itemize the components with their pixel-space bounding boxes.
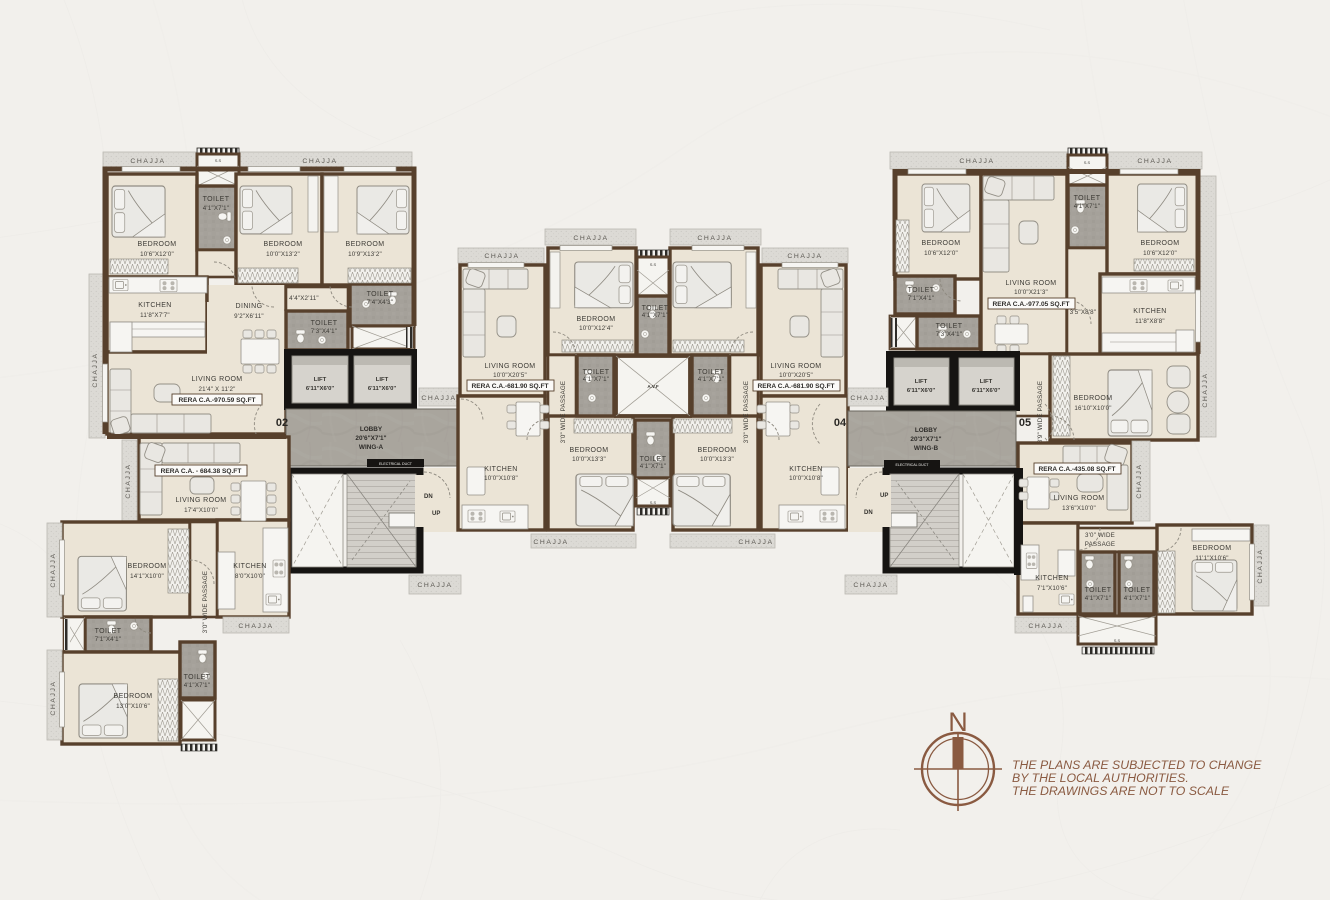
svg-text:11'1"X10'6": 11'1"X10'6" <box>1195 555 1228 562</box>
svg-text:RERA C.A.-681.90 SQ.FT: RERA C.A.-681.90 SQ.FT <box>757 383 834 390</box>
svg-text:10'6"X12'0": 10'6"X12'0" <box>924 250 958 257</box>
svg-text:LIFT: LIFT <box>314 377 327 383</box>
svg-text:17'4"X10'0": 17'4"X10'0" <box>184 507 218 514</box>
svg-text:BEDROOM: BEDROOM <box>1141 240 1180 247</box>
svg-text:RERA C.A.-977.05 SQ.FT: RERA C.A.-977.05 SQ.FT <box>992 301 1069 308</box>
svg-text:BY THE LOCAL AUTHORITIES.: BY THE LOCAL AUTHORITIES. <box>1012 771 1189 785</box>
svg-text:WING-B: WING-B <box>914 445 939 452</box>
svg-text:ELECTRICAL DUCT: ELECTRICAL DUCT <box>895 463 929 467</box>
svg-text:RERA C.A.-435.08 SQ.FT: RERA C.A.-435.08 SQ.FT <box>1038 466 1115 473</box>
svg-text:TOILET: TOILET <box>1085 587 1112 594</box>
svg-text:6'11"X6'0": 6'11"X6'0" <box>306 386 335 392</box>
svg-text:7'4"X4'3": 7'4"X4'3" <box>367 299 393 306</box>
svg-text:CHAJJA: CHAJJA <box>130 158 165 165</box>
svg-text:RERA C.A. - 684.38 SQ.FT: RERA C.A. - 684.38 SQ.FT <box>161 468 242 475</box>
svg-text:WING-A: WING-A <box>359 444 384 451</box>
svg-text:7'1"X4'1": 7'1"X4'1" <box>95 636 121 643</box>
svg-text:TOILET: TOILET <box>95 628 122 635</box>
svg-text:S.S: S.S <box>650 262 657 267</box>
svg-text:7'3"X4'1": 7'3"X4'1" <box>311 328 337 335</box>
svg-text:TOILET: TOILET <box>184 674 211 681</box>
svg-text:CHAJJA: CHAJJA <box>533 539 568 546</box>
svg-text:BEDROOM: BEDROOM <box>346 241 385 248</box>
svg-text:BEDROOM: BEDROOM <box>922 240 961 247</box>
svg-text:3'0" WIDE PASSAGE: 3'0" WIDE PASSAGE <box>202 571 209 633</box>
svg-text:LIVING ROOM: LIVING ROOM <box>1005 280 1056 287</box>
svg-text:RERA C.A.-970.59 SQ.FT: RERA C.A.-970.59 SQ.FT <box>178 397 255 404</box>
svg-text:3'9" WIDE PASSAGE: 3'9" WIDE PASSAGE <box>1037 381 1044 443</box>
svg-text:DN: DN <box>424 494 433 500</box>
svg-text:LIVING ROOM: LIVING ROOM <box>770 363 821 370</box>
svg-text:CHAJJA: CHAJJA <box>238 623 273 630</box>
svg-text:4'1"X7'1": 4'1"X7'1" <box>698 376 724 383</box>
svg-text:10'0"X20'5": 10'0"X20'5" <box>493 372 527 379</box>
svg-text:4'1"X7'1": 4'1"X7'1" <box>1124 595 1150 602</box>
svg-text:KITCHEN: KITCHEN <box>1035 575 1069 582</box>
svg-text:TOILET: TOILET <box>583 369 610 376</box>
svg-text:THE DRAWINGS ARE NOT TO SCALE: THE DRAWINGS ARE NOT TO SCALE <box>1012 784 1230 798</box>
svg-text:13'6"X10'0": 13'6"X10'0" <box>1062 505 1096 512</box>
svg-text:8'0"X10'0": 8'0"X10'0" <box>235 573 265 580</box>
svg-text:S.S: S.S <box>1084 160 1091 165</box>
svg-text:21'4" X 11'2": 21'4" X 11'2" <box>198 386 235 393</box>
svg-text:TOILET: TOILET <box>698 369 725 376</box>
svg-text:11'8"X8'8": 11'8"X8'8" <box>1135 318 1165 325</box>
svg-text:BEDROOM: BEDROOM <box>577 316 616 323</box>
svg-text:UP: UP <box>880 493 888 499</box>
svg-text:4'1"X7'1": 4'1"X7'1" <box>583 376 609 383</box>
svg-text:TOILET: TOILET <box>367 291 394 298</box>
svg-text:DN: DN <box>864 510 873 516</box>
svg-text:20'6"X7'1": 20'6"X7'1" <box>355 435 386 442</box>
svg-text:4'1"X7'1": 4'1"X7'1" <box>640 463 666 470</box>
svg-text:10'0"X10'8": 10'0"X10'8" <box>484 475 518 482</box>
svg-text:CHAJJA: CHAJJA <box>697 235 732 242</box>
svg-text:10'6"X12'0": 10'6"X12'0" <box>140 251 174 258</box>
svg-text:CHAJJA: CHAJJA <box>50 680 57 715</box>
svg-text:CHAJJA: CHAJJA <box>850 395 885 402</box>
svg-text:TOILET: TOILET <box>1124 587 1151 594</box>
svg-text:TOILET: TOILET <box>1074 195 1101 202</box>
svg-text:6'11"X6'0": 6'11"X6'0" <box>907 388 936 394</box>
svg-text:05: 05 <box>1019 417 1031 429</box>
svg-text:CHAJJA: CHAJJA <box>484 253 519 260</box>
svg-text:3'0" WIDE PASSAGE: 3'0" WIDE PASSAGE <box>743 381 750 443</box>
svg-text:14'1"X10'0": 14'1"X10'0" <box>130 573 164 580</box>
svg-text:UP: UP <box>432 511 440 517</box>
svg-text:20'3"X7'1": 20'3"X7'1" <box>910 436 941 443</box>
svg-text:KITCHEN: KITCHEN <box>138 302 172 309</box>
svg-text:4'1"X7'1": 4'1"X7'1" <box>1074 203 1100 210</box>
svg-text:BEDROOM: BEDROOM <box>138 241 177 248</box>
svg-text:LIFT: LIFT <box>376 377 389 383</box>
svg-text:CHAJJA: CHAJJA <box>1137 158 1172 165</box>
svg-text:LIVING ROOM: LIVING ROOM <box>175 497 226 504</box>
svg-text:KITCHEN: KITCHEN <box>1133 308 1167 315</box>
svg-text:TOILET: TOILET <box>203 196 230 203</box>
svg-text:10'6"X12'0": 10'6"X12'0" <box>1143 250 1177 257</box>
svg-text:BEDROOM: BEDROOM <box>114 693 153 700</box>
svg-text:CHAJJA: CHAJJA <box>1028 623 1063 630</box>
svg-text:6'11"X6'0": 6'11"X6'0" <box>972 388 1001 394</box>
svg-text:4'4"X2'11": 4'4"X2'11" <box>289 295 319 302</box>
svg-text:S.S: S.S <box>650 500 657 505</box>
svg-text:CHAJJA: CHAJJA <box>1202 372 1209 407</box>
svg-text:LIVING ROOM: LIVING ROOM <box>1053 495 1104 502</box>
svg-text:LIFT: LIFT <box>915 379 928 385</box>
svg-text:BEDROOM: BEDROOM <box>128 563 167 570</box>
svg-text:10'0"X21'3": 10'0"X21'3" <box>1014 289 1048 296</box>
svg-text:CHAJJA: CHAJJA <box>738 539 773 546</box>
svg-text:KITCHEN: KITCHEN <box>484 466 518 473</box>
svg-text:CHAJJA: CHAJJA <box>1136 463 1143 498</box>
svg-text:BEDROOM: BEDROOM <box>1074 395 1113 402</box>
svg-text:BEDROOM: BEDROOM <box>698 447 737 454</box>
svg-text:CHAJJA: CHAJJA <box>573 235 608 242</box>
svg-text:16'10"X10'0": 16'10"X10'0" <box>1074 405 1111 412</box>
svg-text:CHAJJA: CHAJJA <box>959 158 994 165</box>
svg-text:ELECTRICAL DUCT: ELECTRICAL DUCT <box>379 462 413 466</box>
svg-text:10'0"X10'8": 10'0"X10'8" <box>789 475 823 482</box>
svg-text:4'1"X7'1": 4'1"X7'1" <box>203 205 229 212</box>
svg-text:10'9"X13'2": 10'9"X13'2" <box>348 251 382 258</box>
svg-text:KITCHEN: KITCHEN <box>233 563 267 570</box>
svg-text:10'0"X13'2": 10'0"X13'2" <box>266 251 300 258</box>
svg-text:RERA C.A.-681.90 SQ.FT: RERA C.A.-681.90 SQ.FT <box>471 383 548 390</box>
svg-text:CHAJJA: CHAJJA <box>853 582 888 589</box>
svg-text:KITCHEN: KITCHEN <box>789 466 823 473</box>
svg-text:CHAJJA: CHAJJA <box>50 552 57 587</box>
svg-text:CHAJJA: CHAJJA <box>787 253 822 260</box>
svg-text:7'3"X4'1": 7'3"X4'1" <box>936 331 962 338</box>
svg-text:3'0" WIDE: 3'0" WIDE <box>1085 532 1115 539</box>
svg-text:TOILET: TOILET <box>311 320 338 327</box>
svg-text:7'1"X10'6": 7'1"X10'6" <box>1037 585 1067 592</box>
svg-text:N: N <box>948 707 968 737</box>
svg-text:S.S: S.S <box>1114 638 1121 643</box>
svg-text:11'8"X7'7": 11'8"X7'7" <box>140 312 170 319</box>
svg-text:LOBBY: LOBBY <box>360 426 383 433</box>
svg-text:LIVING ROOM: LIVING ROOM <box>484 363 535 370</box>
svg-text:10'0"X20'5": 10'0"X20'5" <box>779 372 813 379</box>
svg-text:A.V.F: A.V.F <box>647 384 659 389</box>
svg-text:6'11"X6'0": 6'11"X6'0" <box>368 386 397 392</box>
svg-text:10'0"X13'3": 10'0"X13'3" <box>572 456 606 463</box>
svg-text:3'0" WIDE PASSAGE: 3'0" WIDE PASSAGE <box>560 381 567 443</box>
svg-text:BEDROOM: BEDROOM <box>1193 545 1232 552</box>
svg-text:4'1"X7'1": 4'1"X7'1" <box>642 312 668 319</box>
svg-text:CHAJJA: CHAJJA <box>92 352 99 387</box>
svg-text:3'5"X8'8": 3'5"X8'8" <box>1070 309 1096 316</box>
svg-text:7'1"X4'1": 7'1"X4'1" <box>908 295 934 302</box>
svg-text:CHAJJA: CHAJJA <box>302 158 337 165</box>
svg-text:DINING: DINING <box>236 303 263 310</box>
svg-text:CHAJJA: CHAJJA <box>125 463 132 498</box>
svg-text:4'1"X7'1": 4'1"X7'1" <box>1085 595 1111 602</box>
svg-text:TOILET: TOILET <box>642 305 669 312</box>
svg-text:10'0"X13'3": 10'0"X13'3" <box>700 456 734 463</box>
svg-text:LOBBY: LOBBY <box>915 427 938 434</box>
svg-text:S.S: S.S <box>215 158 222 163</box>
svg-text:TOILET: TOILET <box>936 323 963 330</box>
svg-text:13'0"X10'6": 13'0"X10'6" <box>116 703 150 710</box>
svg-text:9'2"X6'11": 9'2"X6'11" <box>234 313 264 320</box>
svg-text:CHAJJA: CHAJJA <box>1257 548 1264 583</box>
svg-text:CHAJJA: CHAJJA <box>417 582 452 589</box>
svg-text:4'1"X7'1": 4'1"X7'1" <box>184 682 210 689</box>
svg-text:LIFT: LIFT <box>980 379 993 385</box>
svg-text:02: 02 <box>276 417 288 429</box>
svg-text:TOILET: TOILET <box>908 287 935 294</box>
svg-text:BEDROOM: BEDROOM <box>570 447 609 454</box>
svg-text:LIVING ROOM: LIVING ROOM <box>191 376 242 383</box>
svg-text:THE PLANS ARE SUBJECTED TO CHA: THE PLANS ARE SUBJECTED TO CHANGE <box>1012 758 1262 772</box>
svg-text:TOILET: TOILET <box>640 456 667 463</box>
svg-text:PASSAGE: PASSAGE <box>1085 541 1116 548</box>
svg-text:10'0"X12'4": 10'0"X12'4" <box>579 325 613 332</box>
svg-text:04: 04 <box>834 417 847 429</box>
svg-text:CHAJJA: CHAJJA <box>421 395 456 402</box>
svg-text:BEDROOM: BEDROOM <box>264 241 303 248</box>
